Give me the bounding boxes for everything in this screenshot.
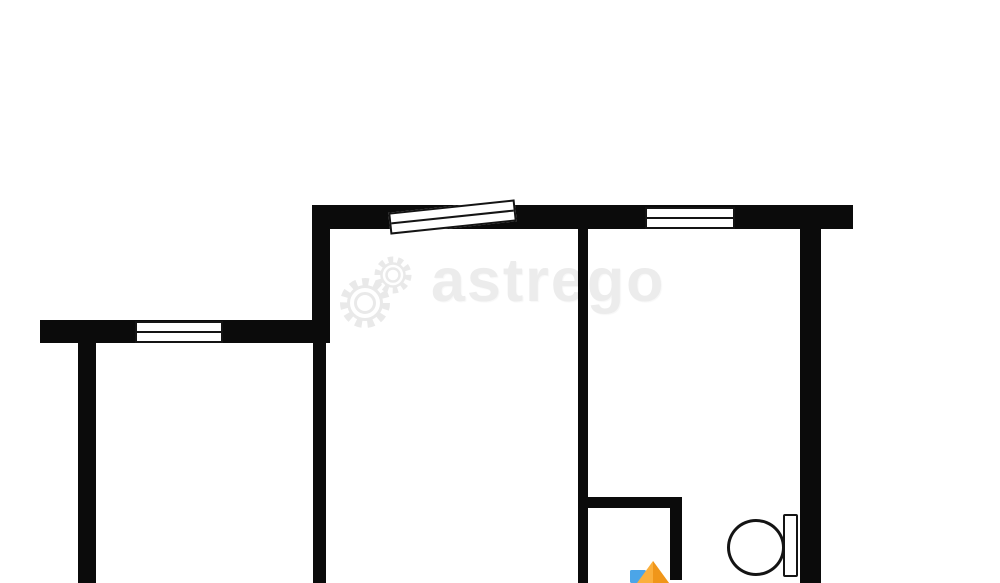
watermark-gears-icon	[330, 242, 422, 338]
window-north-east	[645, 207, 735, 229]
outer-wall-right	[800, 229, 821, 583]
watermark-text: astrego	[431, 250, 665, 311]
window-north-east-divider	[647, 217, 733, 219]
window-north-slanted-divider	[391, 210, 514, 225]
room-left-wall-lower	[313, 343, 326, 583]
brand-logo-icon	[628, 558, 674, 583]
toilet-tank	[783, 514, 798, 577]
logo-orange-pyramid-shade	[653, 561, 669, 583]
window-west-divider	[137, 331, 221, 333]
left-interior-wall	[78, 343, 96, 583]
gear-icon-large	[344, 282, 386, 324]
toilet-bowl	[727, 519, 785, 576]
floor-plan: astrego	[0, 0, 1000, 583]
window-west	[135, 321, 223, 343]
wc-wall-top	[578, 497, 672, 508]
partition-wall-center	[578, 229, 588, 583]
gear-icon-small	[378, 260, 408, 290]
